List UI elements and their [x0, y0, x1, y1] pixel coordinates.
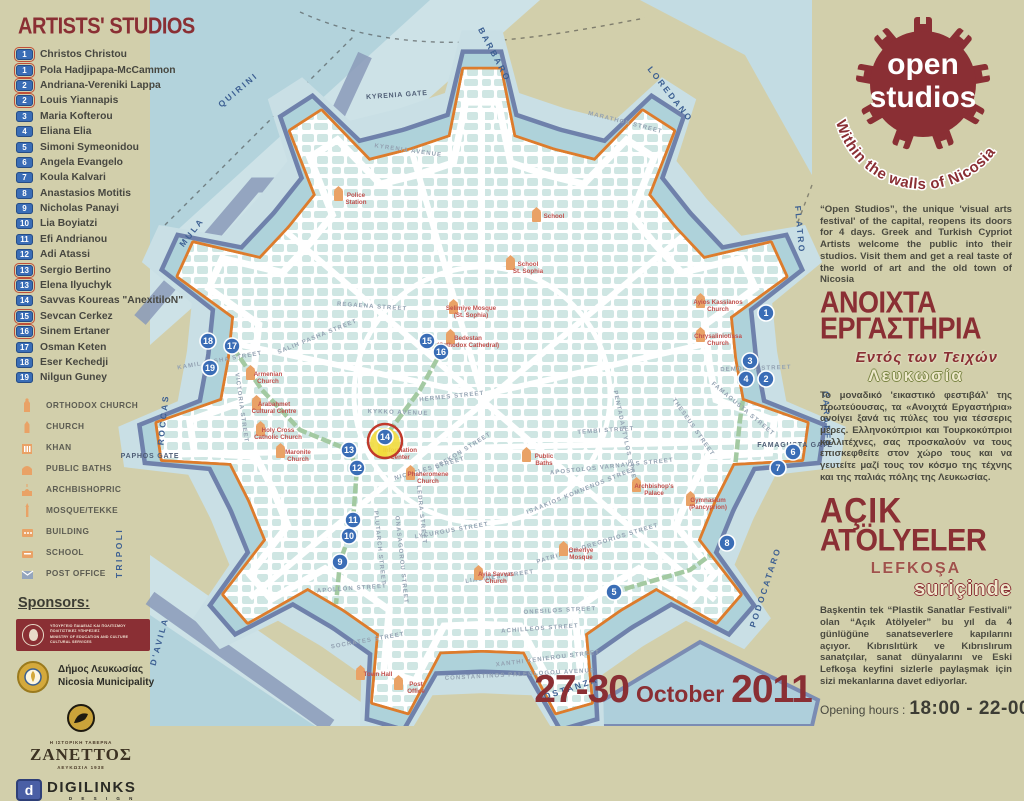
- legend-item: BUILDING: [16, 524, 186, 539]
- svg-text:11: 11: [348, 515, 358, 525]
- studio-list-item: 13Sergio Bertino: [16, 262, 186, 277]
- school-icon: [16, 545, 38, 560]
- map-marker-11: 11: [345, 512, 361, 528]
- legend-item: POST OFFICE: [16, 566, 186, 581]
- svg-text:Church: Church: [257, 378, 279, 385]
- studio-list-item: 19Nilgun Guney: [16, 370, 186, 385]
- studio-list-item: 17Osman Keten: [16, 339, 186, 354]
- map-marker-3: 3: [742, 353, 758, 369]
- svg-text:12: 12: [352, 463, 362, 473]
- svg-text:6: 6: [790, 447, 795, 457]
- map-marker-14: 14: [368, 424, 402, 458]
- artist-name: Simoni Symeonidou: [40, 142, 139, 153]
- subheading-greek-1: Εντός των Τειχών: [820, 349, 1012, 366]
- mosque-tekke-icon: [16, 503, 38, 518]
- svg-text:18: 18: [203, 336, 213, 346]
- svg-text:Church: Church: [287, 456, 309, 463]
- studio-number-badge: 16: [16, 326, 33, 337]
- sidebar: ARTISTS' STUDIOS 1Christos Christou1Pola…: [0, 0, 186, 726]
- artist-name: Christos Christou: [40, 49, 127, 60]
- sponsor-municipality: Δήμος Λευκωσίας Nicosia Municipality: [16, 660, 186, 694]
- studio-number-badge: 18: [16, 357, 33, 368]
- studio-list-item: 18Eser Kechedji: [16, 355, 186, 370]
- legend-label: BUILDING: [46, 526, 89, 536]
- date-month: October: [636, 681, 724, 708]
- artist-name: Koula Kalvari: [40, 172, 106, 183]
- map-marker-8: 8: [719, 535, 735, 551]
- map-marker-17: 17: [224, 338, 240, 354]
- legend-label: CHURCH: [46, 421, 84, 431]
- opening-hours: Opening hours : 18:00 - 22-00: [820, 698, 1012, 720]
- festival-dates: 27-30 October 2011: [508, 668, 838, 712]
- artist-name: Eliana Elia: [40, 126, 92, 137]
- artist-name: Anastasios Motitis: [40, 188, 131, 199]
- map-marker-19: 19: [202, 360, 218, 376]
- svg-text:Arabahmet: Arabahmet: [258, 401, 290, 408]
- subheading-turkish-2: suriçinde: [820, 578, 1012, 601]
- svg-text:Selimiye Mosque: Selimiye Mosque: [446, 305, 497, 312]
- map-marker-2: 2: [758, 371, 774, 387]
- svg-text:16: 16: [436, 347, 446, 357]
- svg-text:(Pancyprion): (Pancyprion): [689, 504, 727, 511]
- svg-text:Church: Church: [707, 306, 729, 313]
- artist-name: Savvas Koureas "AnexitiloN": [40, 295, 183, 306]
- studio-list-item: 7Koula Kalvari: [16, 170, 186, 185]
- studio-list-item: 9Nicholas Panayi: [16, 201, 186, 216]
- svg-text:Maronite: Maronite: [285, 449, 311, 456]
- post-office-icon: [16, 566, 38, 581]
- svg-text:Chrysaliniotissa: Chrysaliniotissa: [694, 333, 742, 340]
- svg-text:19: 19: [205, 363, 215, 373]
- legend-label: PUBLIC BATHS: [46, 463, 112, 473]
- municipality-name-el: Δήμος Λευκωσίας: [58, 664, 154, 677]
- legend-label: KHAN: [46, 442, 72, 452]
- artist-name: Sinem Ertaner: [40, 326, 110, 337]
- svg-text:Town Hall: Town Hall: [364, 671, 393, 678]
- svg-text:Post: Post: [409, 681, 422, 688]
- studio-number-badge: 3: [16, 111, 33, 122]
- studio-number-badge: 1: [16, 49, 33, 60]
- svg-text:15: 15: [422, 336, 432, 346]
- body-turkish: Başkentin tek “Plastik Sanatlar Festival…: [820, 605, 1012, 687]
- heading-turkish-2: ATÖLYELER: [820, 525, 1012, 557]
- legend-item: PUBLIC BATHS: [16, 461, 186, 476]
- map-marker-9: 9: [332, 554, 348, 570]
- studio-number-badge: 10: [16, 218, 33, 229]
- municipality-logo-icon: [16, 660, 50, 694]
- svg-text:14: 14: [380, 432, 390, 442]
- svg-text:Ayios Kassianos: Ayios Kassianos: [693, 299, 743, 306]
- artist-name: Pola Hadjipapa-McCammon: [40, 65, 176, 76]
- svg-text:Phaneromene: Phaneromene: [408, 471, 449, 478]
- artist-name: Andriana-Vereniki Lappa: [40, 80, 161, 91]
- svg-text:Church: Church: [485, 578, 507, 585]
- logo-line2: studios: [870, 81, 977, 114]
- svg-text:Baths: Baths: [535, 460, 553, 467]
- studio-number-badge: 12: [16, 249, 33, 260]
- legend-label: POST OFFICE: [46, 568, 106, 578]
- studio-list-item: 1Christos Christou: [16, 47, 186, 62]
- public-baths-icon: [16, 461, 38, 476]
- body-greek: Το μοναδικό 'εικαστικό φεστιβάλ' της πρω…: [820, 390, 1012, 484]
- municipality-name-en: Nicosia Municipality: [58, 677, 154, 690]
- map-marker-12: 12: [349, 460, 365, 476]
- right-panel: open studios Within the walls of Nicosia…: [812, 0, 1018, 726]
- artist-name: Angela Evangelo: [40, 157, 123, 168]
- sponsor-zanettos: Η ΙΣΤΟΡΙΚΗ ΤΑΒΕΡΝΑ ΖΑΝΕΤΤΟΣ ΛΕΥΚΩΣΙΑ 193…: [16, 703, 146, 770]
- legend-item: CHURCH: [16, 419, 186, 434]
- map-marker-6: 6: [785, 444, 801, 460]
- studio-number-badge: 9: [16, 203, 33, 214]
- legend-item: MOSQUE/TEKKE: [16, 503, 186, 518]
- svg-text:1: 1: [763, 308, 768, 318]
- date-year: 2011: [731, 668, 812, 712]
- map-legend: ORTHODOX CHURCHCHURCHKHANPUBLIC BATHSARC…: [16, 398, 186, 581]
- studio-number-badge: 15: [16, 311, 33, 322]
- artist-name: Adi Atassi: [40, 249, 90, 260]
- svg-text:School: School: [544, 213, 565, 220]
- digilinks-name: DIGILINKS: [47, 779, 136, 796]
- legend-label: SCHOOL: [46, 547, 84, 557]
- intro-english: “Open Studios”, the unique 'visual arts …: [820, 204, 1012, 286]
- svg-text:10: 10: [344, 531, 354, 541]
- studio-number-badge: 11: [16, 234, 33, 245]
- studio-number-badge: 19: [16, 372, 33, 383]
- artist-name: Efi Andrianou: [40, 234, 107, 245]
- artist-name: Lia Boyiatzi: [40, 218, 97, 229]
- svg-text:Omeriye: Omeriye: [569, 547, 594, 554]
- svg-text:Church: Church: [707, 340, 729, 347]
- legend-label: MOSQUE/TEKKE: [46, 505, 118, 515]
- page-title: ARTISTS' STUDIOS: [18, 14, 186, 40]
- studio-list-item: 3Maria Kofterou: [16, 109, 186, 124]
- map-marker-13: 13: [341, 442, 357, 458]
- opening-hours-value: 18:00 - 22-00: [909, 698, 1024, 720]
- studio-list-item: 2Andriana-Vereniki Lappa: [16, 78, 186, 93]
- svg-text:5: 5: [611, 587, 616, 597]
- orthodox-church-icon: [16, 398, 38, 413]
- artist-name: Osman Keten: [40, 342, 106, 353]
- archbishopric-icon: [16, 482, 38, 497]
- heading-greek-2: ΕΡΓΑΣΤΗΡΙΑ: [820, 314, 1012, 344]
- svg-text:Mosque: Mosque: [569, 554, 593, 561]
- artist-name: Sevcan Cerkez: [40, 311, 113, 322]
- studio-list-item: 8Anastasios Motitis: [16, 186, 186, 201]
- legend-label: ORTHODOX CHURCH: [46, 400, 138, 410]
- studio-number-badge: 13: [16, 280, 33, 291]
- svg-text:4: 4: [743, 374, 748, 384]
- svg-text:Holy Cross: Holy Cross: [262, 427, 295, 434]
- svg-text:Palace: Palace: [644, 490, 664, 497]
- legend-item: SCHOOL: [16, 545, 186, 560]
- svg-text:Police: Police: [347, 192, 366, 199]
- artist-name: Nicholas Panayi: [40, 203, 119, 214]
- studio-list-item: 10Lia Boyiatzi: [16, 216, 186, 231]
- studio-number-badge: 13: [16, 265, 33, 276]
- subheading-greek-2: Λευκωσία: [820, 366, 1012, 386]
- studio-number-badge: 8: [16, 188, 33, 199]
- svg-text:Bedestan: Bedestan: [454, 335, 482, 342]
- church-icon: [16, 419, 38, 434]
- digilinks-sub: D E S I G N: [47, 796, 136, 801]
- legend-label: ARCHBISHOPRIC: [46, 484, 121, 494]
- svg-text:Armenian: Armenian: [254, 371, 283, 378]
- svg-text:2: 2: [763, 374, 768, 384]
- map-marker-5: 5: [606, 584, 622, 600]
- legend-item: ARCHBISHOPRIC: [16, 482, 186, 497]
- svg-text:Public: Public: [535, 453, 554, 460]
- map-marker-1: 1: [758, 305, 774, 321]
- studio-list-item: 12Adi Atassi: [16, 247, 186, 262]
- artist-name: Elena Ilyuchyk: [40, 280, 112, 291]
- studio-list-item: 6Angela Evangelo: [16, 155, 186, 170]
- studio-number-badge: 6: [16, 157, 33, 168]
- sponsor-digilinks: d DIGILINKS D E S I G N: [16, 779, 186, 801]
- studio-list-item: 16Sinem Ertaner: [16, 324, 186, 339]
- svg-text:7: 7: [775, 463, 780, 473]
- studio-number-badge: 5: [16, 142, 33, 153]
- map-marker-4: 4: [738, 371, 754, 387]
- svg-text:8: 8: [724, 538, 729, 548]
- artist-name: Maria Kofterou: [40, 111, 113, 122]
- studio-list-item: 13Elena Ilyuchyk: [16, 278, 186, 293]
- svg-text:School: School: [518, 261, 539, 268]
- studio-list-item: 15Sevcan Cerkez: [16, 309, 186, 324]
- artist-name: Nilgun Guney: [40, 372, 107, 383]
- svg-text:St. Sophia: St. Sophia: [513, 268, 544, 275]
- svg-text:Catholic Church: Catholic Church: [254, 434, 302, 441]
- svg-text:Station: Station: [346, 199, 367, 206]
- studio-number-badge: 4: [16, 126, 33, 137]
- studio-list-item: 2Louis Yiannapis: [16, 93, 186, 108]
- studio-number-badge: 1: [16, 65, 33, 76]
- artists-studio-list: 1Christos Christou1Pola Hadjipapa-McCamm…: [16, 47, 186, 386]
- khan-icon: [16, 440, 38, 455]
- studio-list-item: 14Savvas Koureas "AnexitiloN": [16, 293, 186, 308]
- svg-text:3: 3: [747, 356, 752, 366]
- digilinks-logo-icon: d: [16, 779, 42, 801]
- studio-list-item: 11Efi Andrianou: [16, 232, 186, 247]
- svg-text:Ayia Savvas: Ayia Savvas: [478, 571, 514, 578]
- legend-item: ORTHODOX CHURCH: [16, 398, 186, 413]
- studio-number-badge: 7: [16, 172, 33, 183]
- subheading-turkish-1: LEFKOŞA: [820, 560, 1012, 578]
- studio-number-badge: 2: [16, 95, 33, 106]
- svg-text:(St. Sophia): (St. Sophia): [454, 312, 488, 319]
- building-icon: [16, 524, 38, 539]
- artist-name: Eser Kechedji: [40, 357, 108, 368]
- svg-text:Cultural Centre: Cultural Centre: [252, 408, 297, 415]
- ministry-line: CULTURAL SERVICES: [50, 640, 128, 645]
- zanettos-since: ΛΕΥΚΩΣΙΑ 1938: [16, 765, 146, 770]
- zanettos-name: ΖΑΝΕΤΤΟΣ: [16, 745, 146, 765]
- sponsors-title: Sponsors:: [18, 595, 186, 611]
- artist-name: Louis Yiannapis: [40, 95, 118, 106]
- studio-list-item: 1Pola Hadjipapa-McCammon: [16, 62, 186, 77]
- artist-name: Sergio Bertino: [40, 265, 111, 276]
- zanettos-logo-icon: [64, 703, 98, 733]
- map-marker-15: 15: [419, 333, 435, 349]
- date-days: 27-30: [534, 668, 629, 712]
- svg-text:9: 9: [337, 557, 342, 567]
- svg-text:Office: Office: [407, 688, 425, 695]
- studio-list-item: 4Eliana Elia: [16, 124, 186, 139]
- cyprus-crest-icon: [22, 624, 44, 646]
- studio-number-badge: 17: [16, 342, 33, 353]
- svg-text:13: 13: [344, 445, 354, 455]
- studio-list-item: 5Simoni Symeonidou: [16, 139, 186, 154]
- svg-text:Church: Church: [417, 478, 439, 485]
- open-studios-logo: open studios Within the walls of Nicosia: [820, 4, 1020, 202]
- studio-number-badge: 14: [16, 295, 33, 306]
- legend-item: KHAN: [16, 440, 186, 455]
- map-marker-16: 16: [433, 344, 449, 360]
- logo-line1: open: [887, 48, 959, 81]
- svg-text:Archbishop's: Archbishop's: [634, 483, 674, 490]
- sponsor-ministry: ΥΠΟΥΡΓΕΙΟ ΠΑΙΔΕΙΑΣ ΚΑΙ ΠΟΛΙΤΙΣΜΟΥ ΠΟΛΙΤΙ…: [16, 619, 150, 651]
- svg-text:Gymnasium: Gymnasium: [690, 497, 726, 504]
- map-marker-18: 18: [200, 333, 216, 349]
- map-marker-10: 10: [341, 528, 357, 544]
- studio-number-badge: 2: [16, 80, 33, 91]
- map-marker-7: 7: [770, 460, 786, 476]
- svg-text:17: 17: [227, 341, 237, 351]
